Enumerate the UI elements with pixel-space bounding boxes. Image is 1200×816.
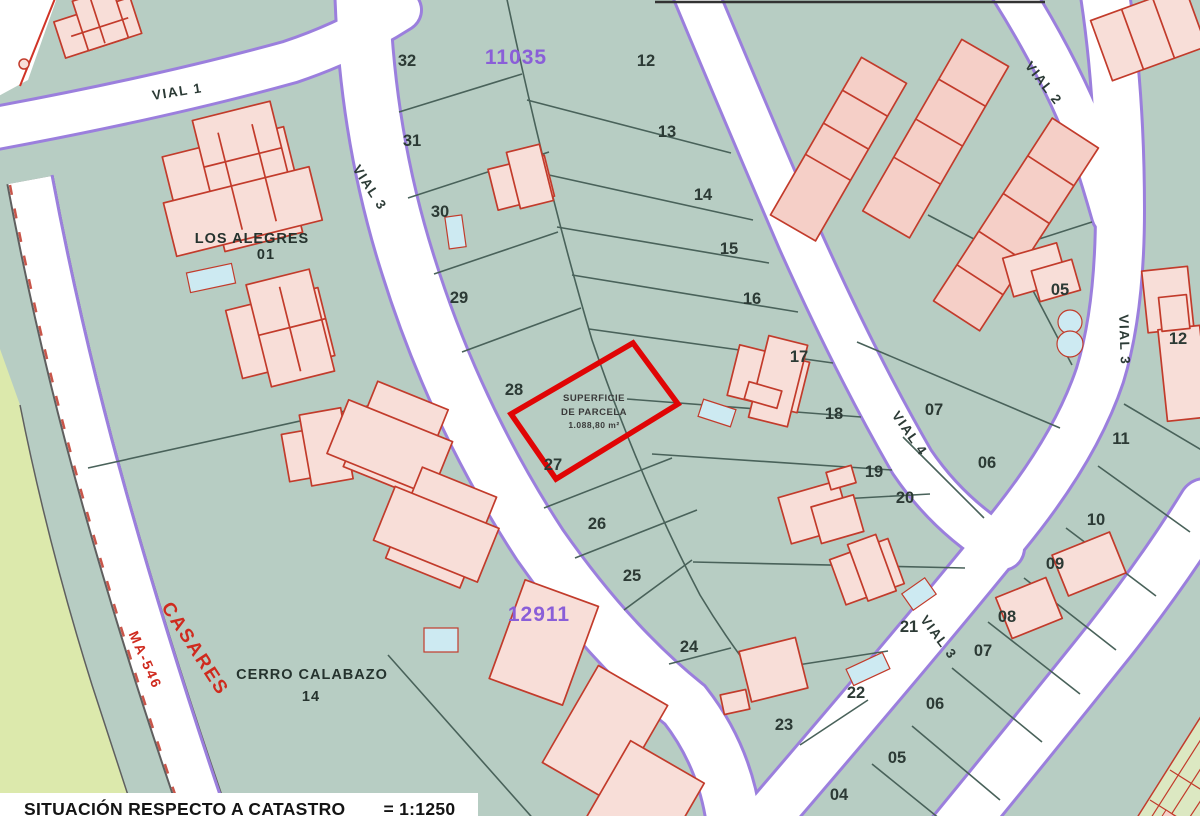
parcel-number: 07 [974,642,992,660]
parcel-number: 10 [1087,511,1105,529]
parcel-number: 09 [1046,555,1064,573]
parcel-number: 05 [1051,281,1069,299]
caption-title: SITUACIÓN RESPECTO A CATASTRO [24,799,345,816]
parcel-number: 08 [998,608,1016,626]
parcel-number: 24 [680,638,699,656]
area-label: CERRO CALABAZO [236,667,388,683]
parcel-number: 07 [925,401,943,419]
highlight-area-value: 1.088,80 m² [568,420,619,430]
parcel-number: 32 [398,52,416,70]
parcel-number: 04 [830,786,849,804]
parcel-number: 17 [790,348,808,366]
parcel-number: 25 [623,567,641,585]
parcel-number: 12 [1169,330,1187,348]
parcel-number: 15 [720,240,738,258]
area-label: 14 [302,689,320,705]
parcel-number: 14 [694,186,713,204]
parcel-number: 13 [658,123,676,141]
caption-scale: = 1:1250 [383,799,455,816]
parcel-number: 30 [431,203,449,221]
parcel-number: 11 [1112,430,1129,448]
parcel-number: 05 [888,749,906,767]
parcel-number: 21 [900,618,918,636]
highlight-line-1: SUPERFICIE [563,393,625,404]
parcel-number: 12 [637,52,655,70]
parcel-number: 31 [403,132,421,150]
highlight-line-2: DE PARCELA [561,407,627,418]
parcel-number: 22 [847,684,865,702]
block-id-label: 12911 [508,603,570,626]
building-small-23 [720,690,750,715]
parcel-number: 27 [544,456,562,474]
parcel-number: 06 [926,695,944,713]
parcel-number: 23 [775,716,793,734]
pool-12911 [424,628,458,652]
parcel-number: 18 [825,405,843,423]
parcel-number: 20 [896,489,914,507]
map-canvas: SUPERFICIE DE PARCELA 1.088,80 m² 323130… [0,0,1200,816]
parcel-number: 06 [978,454,996,472]
parcel-number: 29 [450,289,468,307]
block-id-label: 11035 [485,46,547,69]
map-caption: SITUACIÓN RESPECTO A CATASTRO= 1:1250 [24,799,455,816]
parcel-number: 26 [588,515,606,533]
area-label: 01 [257,247,275,263]
cadastral-map: SUPERFICIE DE PARCELA 1.088,80 m² 323130… [0,0,1200,816]
parcel-number: 19 [865,463,883,481]
area-label: LOS ALEGRES [195,231,309,247]
street-label: VIAL 3 [1116,314,1133,365]
parcel-number: 16 [743,290,761,308]
parcel-number: 28 [505,381,523,399]
